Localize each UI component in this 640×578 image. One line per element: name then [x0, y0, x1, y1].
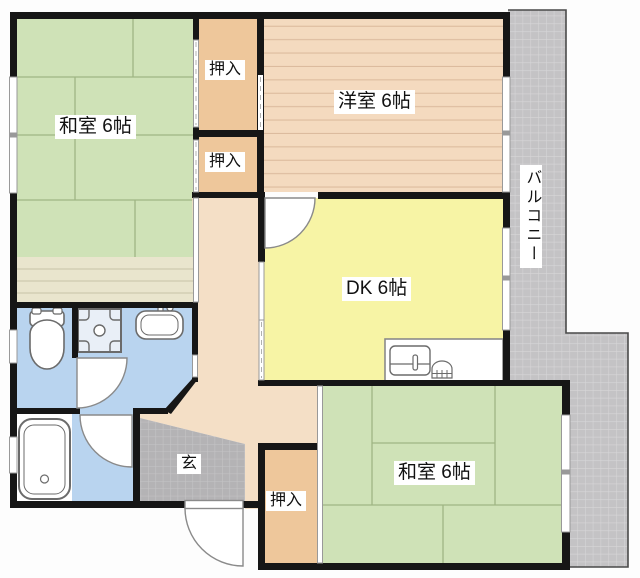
sliding-door-washitsu-top	[194, 198, 199, 302]
entrance-door-leaf	[185, 501, 243, 509]
sliding-door-dk-hallway-lower	[259, 320, 264, 380]
sliding-door-washroom-gap	[193, 355, 198, 377]
window-toilet	[10, 330, 18, 363]
room-label-balcony: バルコニー	[520, 165, 542, 268]
room-label-genkan: 玄	[177, 454, 201, 474]
kitchen-sink-icon	[385, 339, 503, 381]
floor-plan: 和室 6帖 押入 押入 洋室 6帖 バルコニー DK 6帖 和室 6帖 押入 玄	[0, 0, 640, 578]
balcony-grid-wide	[566, 333, 628, 567]
room-label-oshiire-3: 押入	[266, 491, 306, 511]
room-label-dk: DK 6帖	[342, 277, 411, 301]
window-dk-balcony	[503, 228, 511, 330]
room-label-washitsu-top: 和室 6帖	[55, 115, 136, 139]
room-label-yoshitsu: 洋室 6帖	[334, 90, 415, 114]
window-washitsu-bottom-balcony	[562, 415, 571, 532]
room-label-washitsu-bottom: 和室 6帖	[394, 461, 475, 485]
window-washitsu-top-left	[10, 77, 18, 193]
sliding-door-dk-hallway-upper	[259, 262, 264, 320]
sliding-door-washitsu-bottom	[318, 386, 323, 563]
bathtub-icon	[19, 419, 70, 499]
toilet-icon	[30, 308, 64, 369]
sliding-door-oshiire-1	[194, 40, 199, 127]
washitsu-top-edge-strip	[16, 257, 196, 302]
window-bath	[10, 437, 18, 473]
floor-plan-drawing	[0, 0, 640, 578]
entrance-door-swing	[185, 508, 243, 566]
window-yoshitsu-balcony	[503, 77, 511, 192]
washing-machine-pan-icon	[78, 309, 121, 352]
room-label-oshiire-1: 押入	[205, 60, 245, 80]
room-label-oshiire-2: 押入	[205, 152, 245, 172]
sliding-door-oshiire-2	[194, 140, 199, 192]
